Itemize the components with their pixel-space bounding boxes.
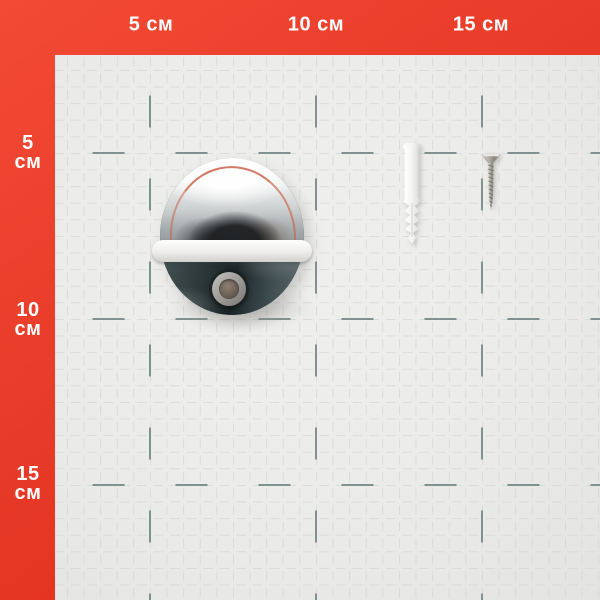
- stopper-button-core: [219, 279, 239, 299]
- top-ruler-label-15cm: 15 см: [453, 16, 509, 35]
- plug-slot: [411, 203, 413, 237]
- stopper-button: [212, 272, 246, 306]
- product-photo-measurement-board: 5 см 10 см 15 см 5 см 10 см 15 см: [0, 0, 600, 600]
- screw-drawing: [480, 153, 502, 215]
- left-ruler-label-5cm: 5 см: [15, 134, 42, 172]
- top-ruler-label-5cm: 5 см: [129, 16, 174, 35]
- left-ruler-unit: см: [15, 318, 42, 340]
- left-ruler-unit: см: [15, 151, 42, 173]
- plug-body: [405, 148, 420, 199]
- chrome-door-stopper: [150, 150, 330, 330]
- mounting-screw: [480, 153, 502, 215]
- top-ruler-label-10cm: 10 см: [288, 16, 344, 35]
- bumper-band: [152, 240, 312, 262]
- screw-head-top: [483, 154, 500, 156]
- wall-plug-drawing: [401, 143, 423, 249]
- left-ruler-label-10cm: 10 см: [15, 301, 42, 339]
- wall-plug-dowel: [401, 143, 423, 249]
- left-ruler-label-15cm: 15 см: [15, 465, 42, 503]
- left-ruler-unit: см: [15, 482, 42, 504]
- door-stopper-sphere: [160, 158, 304, 315]
